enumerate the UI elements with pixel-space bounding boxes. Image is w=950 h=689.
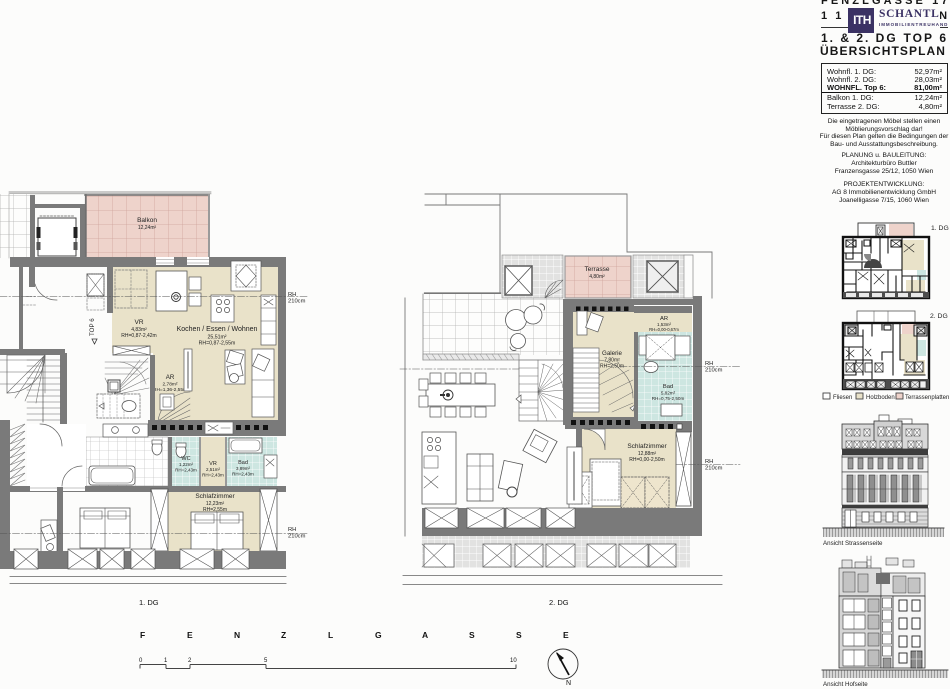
svg-text:Ansicht Strassenseite: Ansicht Strassenseite — [823, 540, 883, 547]
svg-text:RH=2,43m: RH=2,43m — [175, 468, 197, 473]
svg-text:Balkon: Balkon — [137, 217, 157, 224]
svg-text:2,78m²: 2,78m² — [163, 382, 178, 388]
svg-text:210cm: 210cm — [705, 368, 723, 374]
svg-text:Schlafzimmer: Schlafzimmer — [195, 493, 235, 500]
svg-text:Terrasse: Terrasse — [585, 266, 610, 273]
svg-text:G: G — [375, 630, 382, 640]
svg-text:RH=2,43m: RH=2,43m — [202, 473, 224, 478]
svg-text:E: E — [187, 630, 193, 640]
svg-text:10: 10 — [510, 658, 517, 664]
svg-text:RH=2,43m: RH=2,43m — [232, 472, 254, 477]
svg-text:2. DG: 2. DG — [549, 598, 569, 607]
svg-text:Ansicht Hofseite: Ansicht Hofseite — [823, 681, 868, 688]
svg-text:0: 0 — [139, 658, 143, 664]
svg-text:2: 2 — [188, 658, 192, 664]
svg-text:RH=0,00-2,50m: RH=0,00-2,50m — [629, 457, 664, 463]
svg-text:Schlafzimmer: Schlafzimmer — [627, 443, 667, 450]
svg-text:12,24m²: 12,24m² — [138, 225, 157, 231]
svg-text:5: 5 — [264, 658, 268, 664]
svg-text:2,51m²: 2,51m² — [206, 467, 221, 472]
svg-text:Z: Z — [281, 630, 286, 640]
svg-text:210cm: 210cm — [288, 534, 306, 540]
svg-text:1: 1 — [164, 658, 168, 664]
svg-text:A: A — [422, 630, 428, 640]
svg-text:AR: AR — [166, 374, 175, 381]
svg-text:RH: RH — [288, 527, 296, 533]
svg-text:Kochen / Essen / Wohnen: Kochen / Essen / Wohnen — [177, 326, 258, 333]
svg-text:1,22m²: 1,22m² — [179, 462, 194, 467]
svg-text:Holzboden: Holzboden — [866, 395, 895, 401]
svg-text:210cm: 210cm — [288, 299, 306, 305]
svg-text:RH=1,36-2,55m: RH=1,36-2,55m — [153, 387, 187, 393]
svg-text:N: N — [234, 630, 240, 640]
svg-text:Fliesen: Fliesen — [833, 395, 852, 401]
svg-text:210cm: 210cm — [705, 466, 723, 472]
svg-text:1. DG: 1. DG — [139, 598, 159, 607]
svg-text:RH: RH — [288, 292, 296, 298]
svg-text:VR: VR — [134, 319, 143, 326]
svg-text:RH=0,75-2,50m: RH=0,75-2,50m — [652, 396, 685, 401]
svg-text:RH=0,00-0,67m: RH=0,00-0,67m — [649, 327, 679, 332]
svg-text:Galerie: Galerie — [602, 350, 623, 357]
svg-text:RH=0,87-2,55m: RH=0,87-2,55m — [199, 341, 236, 347]
svg-text:1. DG: 1. DG — [931, 225, 949, 232]
svg-text:N: N — [566, 680, 571, 687]
svg-text:RH=0,87-2,42m: RH=0,87-2,42m — [121, 333, 156, 339]
svg-text:4,80m²: 4,80m² — [589, 274, 605, 280]
svg-text:3,89m²: 3,89m² — [236, 466, 251, 471]
svg-text:F: F — [140, 630, 145, 640]
svg-text:TOP 6: TOP 6 — [89, 318, 96, 336]
svg-text:5,82m²: 5,82m² — [661, 391, 676, 396]
svg-text:Terrassenplatten: Terrassenplatten — [905, 395, 949, 401]
svg-text:S: S — [469, 630, 475, 640]
svg-text:Bad: Bad — [663, 384, 673, 390]
svg-text:RH: RH — [705, 459, 713, 465]
svg-text:E: E — [563, 630, 569, 640]
svg-text:RH: RH — [705, 361, 713, 367]
svg-text:S: S — [516, 630, 522, 640]
svg-text:2. DG: 2. DG — [930, 313, 948, 320]
svg-text:L: L — [328, 630, 333, 640]
